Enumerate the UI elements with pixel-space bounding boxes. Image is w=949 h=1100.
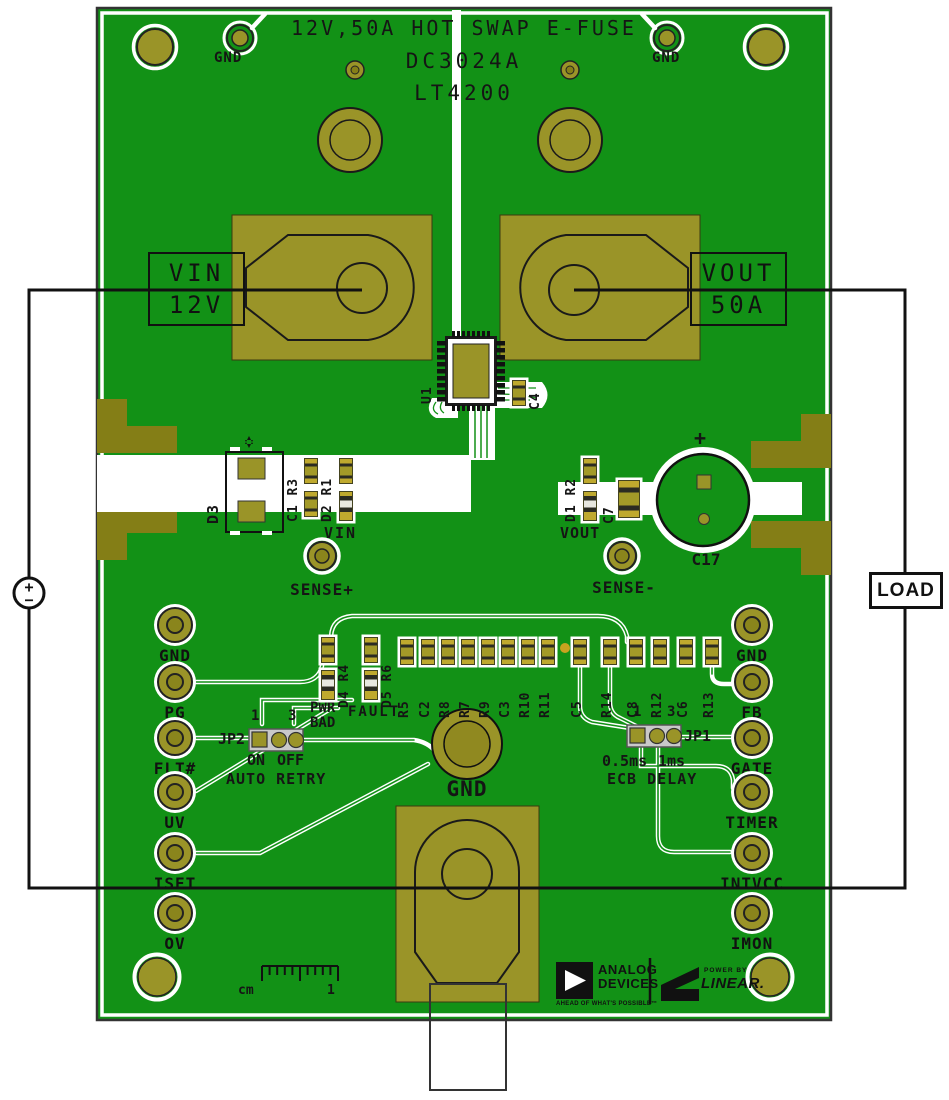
testpoint-timer bbox=[734, 774, 770, 810]
jp1-option-1ms: 1ms bbox=[658, 752, 685, 770]
ruler-unit-label: cm bbox=[238, 983, 254, 998]
load-box: LOAD bbox=[869, 572, 943, 609]
component-c7 bbox=[618, 480, 640, 518]
adi-logo-text: ANALOG DEVICES bbox=[598, 963, 659, 990]
testpoint-gnd bbox=[734, 607, 770, 643]
component-r7 bbox=[461, 639, 475, 665]
gnd-center-label: GND bbox=[427, 777, 507, 801]
testpoint-pg bbox=[157, 664, 193, 700]
component-r9 bbox=[481, 639, 495, 665]
jp1-body bbox=[627, 725, 682, 747]
component-label: R5 bbox=[397, 670, 412, 718]
gnd-lug bbox=[396, 806, 539, 1002]
d1r2-label: D1 R2 bbox=[564, 454, 579, 522]
c1r3-label: C1 R3 bbox=[286, 454, 301, 522]
component-r3 bbox=[304, 458, 318, 484]
vout-lug-pad bbox=[500, 215, 700, 360]
jp2-pin3-label: 3 bbox=[288, 708, 296, 724]
component-r10 bbox=[521, 639, 535, 665]
gnd-pad-center bbox=[432, 709, 502, 779]
component-d5 bbox=[364, 670, 378, 700]
jp2-caption: AUTO RETRY bbox=[226, 770, 326, 788]
component-r2 bbox=[583, 458, 597, 484]
testpoint-label: TIMER bbox=[697, 813, 807, 832]
adi-logo-line1: ANALOG bbox=[598, 963, 659, 977]
testpoint-label: IMON bbox=[697, 934, 807, 953]
testpoint-label: ISET bbox=[120, 874, 230, 893]
chip-name: LT4200 bbox=[97, 81, 831, 105]
component-r14 bbox=[603, 639, 617, 665]
component-c1 bbox=[304, 491, 318, 517]
component-d1 bbox=[583, 491, 597, 521]
component-label: R11 bbox=[538, 670, 553, 718]
vout-current: 50A bbox=[711, 291, 766, 319]
jp1-ref-label: JP1 bbox=[684, 727, 711, 745]
vout-label: VOUT bbox=[702, 259, 776, 287]
testpoint-gate bbox=[734, 720, 770, 756]
vin-lug-pad bbox=[232, 215, 432, 360]
jp2-ref-label: JP2 bbox=[218, 730, 245, 748]
testpoint-intvcc bbox=[734, 835, 770, 871]
component-c6 bbox=[679, 639, 693, 665]
component-label: C6 bbox=[676, 670, 691, 718]
adi-tagline: AHEAD OF WHAT'S POSSIBLE™ bbox=[556, 1001, 657, 1007]
component-c8 bbox=[629, 639, 643, 665]
component-label: R12 bbox=[650, 670, 665, 718]
component-label: R10 bbox=[518, 670, 533, 718]
gnd-label-top-left: GND bbox=[214, 50, 242, 66]
component-r13 bbox=[705, 639, 719, 665]
jp2-body bbox=[249, 729, 304, 751]
c7-label: C7 bbox=[602, 478, 617, 524]
vin-label: VIN bbox=[169, 259, 224, 287]
pwr-bad-label: PWR BAD bbox=[310, 701, 335, 731]
pwr-bad-line2: BAD bbox=[310, 716, 335, 731]
c4-label: C4 bbox=[528, 378, 543, 410]
jp1-pin3-label: 3 bbox=[667, 704, 675, 720]
component-c4 bbox=[512, 380, 526, 406]
d5r6-label: D5 R6 bbox=[380, 634, 395, 708]
component-label: C3 bbox=[498, 670, 513, 718]
gnd-label-top-right: GND bbox=[652, 50, 680, 66]
vin-node-label: VIN bbox=[324, 524, 357, 542]
c17-polarity-mark: + bbox=[694, 426, 706, 450]
jp1-caption: ECB DELAY bbox=[607, 770, 697, 788]
testpoint-label: UV bbox=[120, 813, 230, 832]
jp2-option-off: OFF bbox=[277, 751, 304, 769]
component-r1 bbox=[339, 458, 353, 484]
component-label: R14 bbox=[600, 670, 615, 718]
component-c2 bbox=[421, 639, 435, 665]
d4r4-label: D4 R4 bbox=[337, 634, 352, 708]
component-c5 bbox=[573, 639, 587, 665]
ic-ref-label: U1 bbox=[420, 368, 435, 404]
pwr-bad-line1: PWR bbox=[310, 701, 335, 716]
testpoint-imon bbox=[734, 895, 770, 931]
vout-node-label: VOUT bbox=[560, 524, 600, 542]
sense-plus-label: SENSE+ bbox=[268, 580, 376, 599]
adi-logo-line2: DEVICES bbox=[598, 977, 659, 991]
capacitor-c17 bbox=[653, 450, 753, 550]
source-icon: + − bbox=[14, 578, 44, 609]
load-label: LOAD bbox=[877, 580, 935, 602]
testpoint-fb bbox=[734, 664, 770, 700]
component-r6 bbox=[364, 637, 378, 663]
testpoint-gnd bbox=[157, 607, 193, 643]
vin-label-box: VIN 12V bbox=[148, 252, 245, 326]
power-by-label: POWER BY bbox=[704, 967, 747, 974]
vout-label-box: VOUT 50A bbox=[690, 252, 787, 326]
component-label: C2 bbox=[418, 670, 433, 718]
adi-logo-icon bbox=[556, 962, 593, 999]
pcb-screenshot: + − 12V,50A HOT SWAP E-FUSE DC3024A LT42… bbox=[0, 0, 949, 1100]
component-d4 bbox=[321, 670, 335, 700]
jp1-option-05ms: 0.5ms bbox=[602, 752, 647, 770]
testpoint-iset bbox=[157, 835, 193, 871]
sense-minus-label: SENSE- bbox=[570, 578, 678, 597]
component-r5 bbox=[400, 639, 414, 665]
d2r1-label: D2 R1 bbox=[320, 454, 335, 522]
board-title: 12V,50A HOT SWAP E-FUSE bbox=[97, 16, 831, 40]
c17-label: C17 bbox=[676, 550, 736, 569]
via bbox=[560, 643, 570, 653]
component-label: R9 bbox=[478, 670, 493, 718]
testpoint-label: OV bbox=[120, 934, 230, 953]
component-r8 bbox=[441, 639, 455, 665]
testpoint-ov bbox=[157, 895, 193, 931]
component-d2 bbox=[339, 491, 353, 521]
component-c3 bbox=[501, 639, 515, 665]
vin-voltage: 12V bbox=[169, 291, 224, 319]
jp2-option-on: ON bbox=[247, 751, 265, 769]
component-label: C8 bbox=[626, 670, 641, 718]
ruler-mark-label: 1 bbox=[327, 983, 335, 998]
board-number: DC3024A bbox=[97, 49, 831, 73]
component-label: C5 bbox=[570, 670, 585, 718]
component-r11 bbox=[541, 639, 555, 665]
linear-logo-text: LINEAR. bbox=[701, 975, 765, 992]
component-r12 bbox=[653, 639, 667, 665]
component-label: R13 bbox=[702, 670, 717, 718]
component-r4 bbox=[321, 637, 335, 663]
source-minus: − bbox=[24, 591, 33, 609]
d3-label: D3 bbox=[204, 464, 222, 524]
testpoint-label: INTVCC bbox=[697, 874, 807, 893]
testpoint-uv bbox=[157, 774, 193, 810]
jp2-pin1-label: 1 bbox=[251, 708, 259, 724]
component-label: R8 bbox=[438, 670, 453, 718]
testpoint-flt# bbox=[157, 720, 193, 756]
component-label: R7 bbox=[458, 670, 473, 718]
testpoint-label: GND bbox=[120, 646, 230, 665]
